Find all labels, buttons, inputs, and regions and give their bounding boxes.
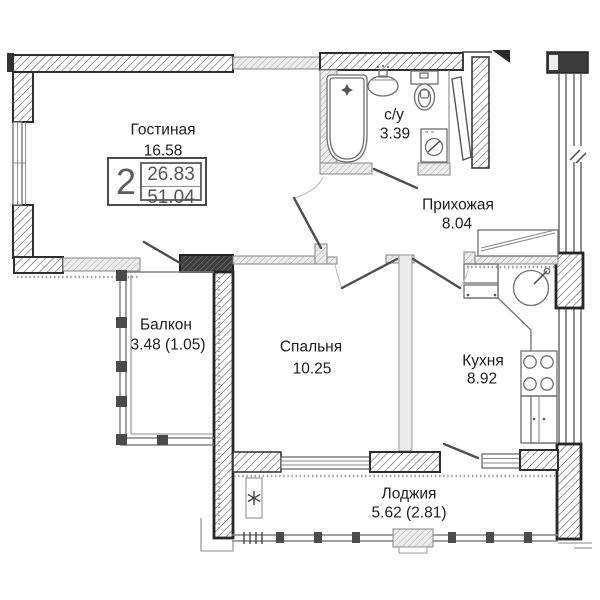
living-room-door [294,198,321,248]
toilet-icon [411,71,438,110]
room-label-loggia: Лоджия [382,486,437,502]
loggia-door [444,444,478,458]
room-label-bedroom: Спальня [280,339,342,355]
bathtub-icon [327,75,367,162]
room-label-balcony: Балкон [140,317,192,333]
kitchen-cabinet-icon [521,396,557,443]
entrance-arrow-icon [492,50,510,63]
room-label-bathroom: с/у [384,107,404,123]
wardrobe-icon [478,230,558,256]
badge-living-area: 26.83 [142,164,200,187]
badge-areas-box: 26.83 51.04 [140,162,202,201]
room-area-bathroom: 3.39 [380,126,410,142]
washing-machine-icon [421,129,447,162]
insulation-dots [17,267,555,531]
bedroom-door [342,259,397,288]
room-area-loggia: 5.62 (2.81) [372,505,447,521]
room-area-kitchen: 8.92 [467,371,497,387]
loggia-wall-windows [233,450,558,472]
right-glazed-wall [556,73,592,548]
room-label-hallway: Прихожая [422,197,494,213]
badge-total-area: 51.04 [142,187,200,209]
room-area-bedroom: 10.25 [293,361,332,377]
balcony-railing [116,270,214,445]
apartment-info-badge: 2 26.83 51.04 [107,157,207,206]
kitchen-door [413,259,460,288]
floor-plan-drawing [0,0,600,600]
balcony-door [144,242,180,263]
room-label-living-room: Гостиная [130,122,195,138]
badge-rooms-count: 2 [112,162,140,201]
radiator-icon [246,478,262,518]
entrance-door [452,77,471,160]
room-area-balcony: 3.48 (1.05) [131,337,206,353]
living-room-window [13,122,26,205]
kitchen-sink-icon [514,268,550,305]
floor-plan: Гостиная 16.58 с/у 3.39 Прихожая 8.04 Ба… [0,0,600,600]
stove-icon [521,351,557,396]
room-label-kitchen: Кухня [462,353,503,369]
room-area-hallway: 8.04 [442,216,472,232]
bathroom-door [374,169,417,188]
